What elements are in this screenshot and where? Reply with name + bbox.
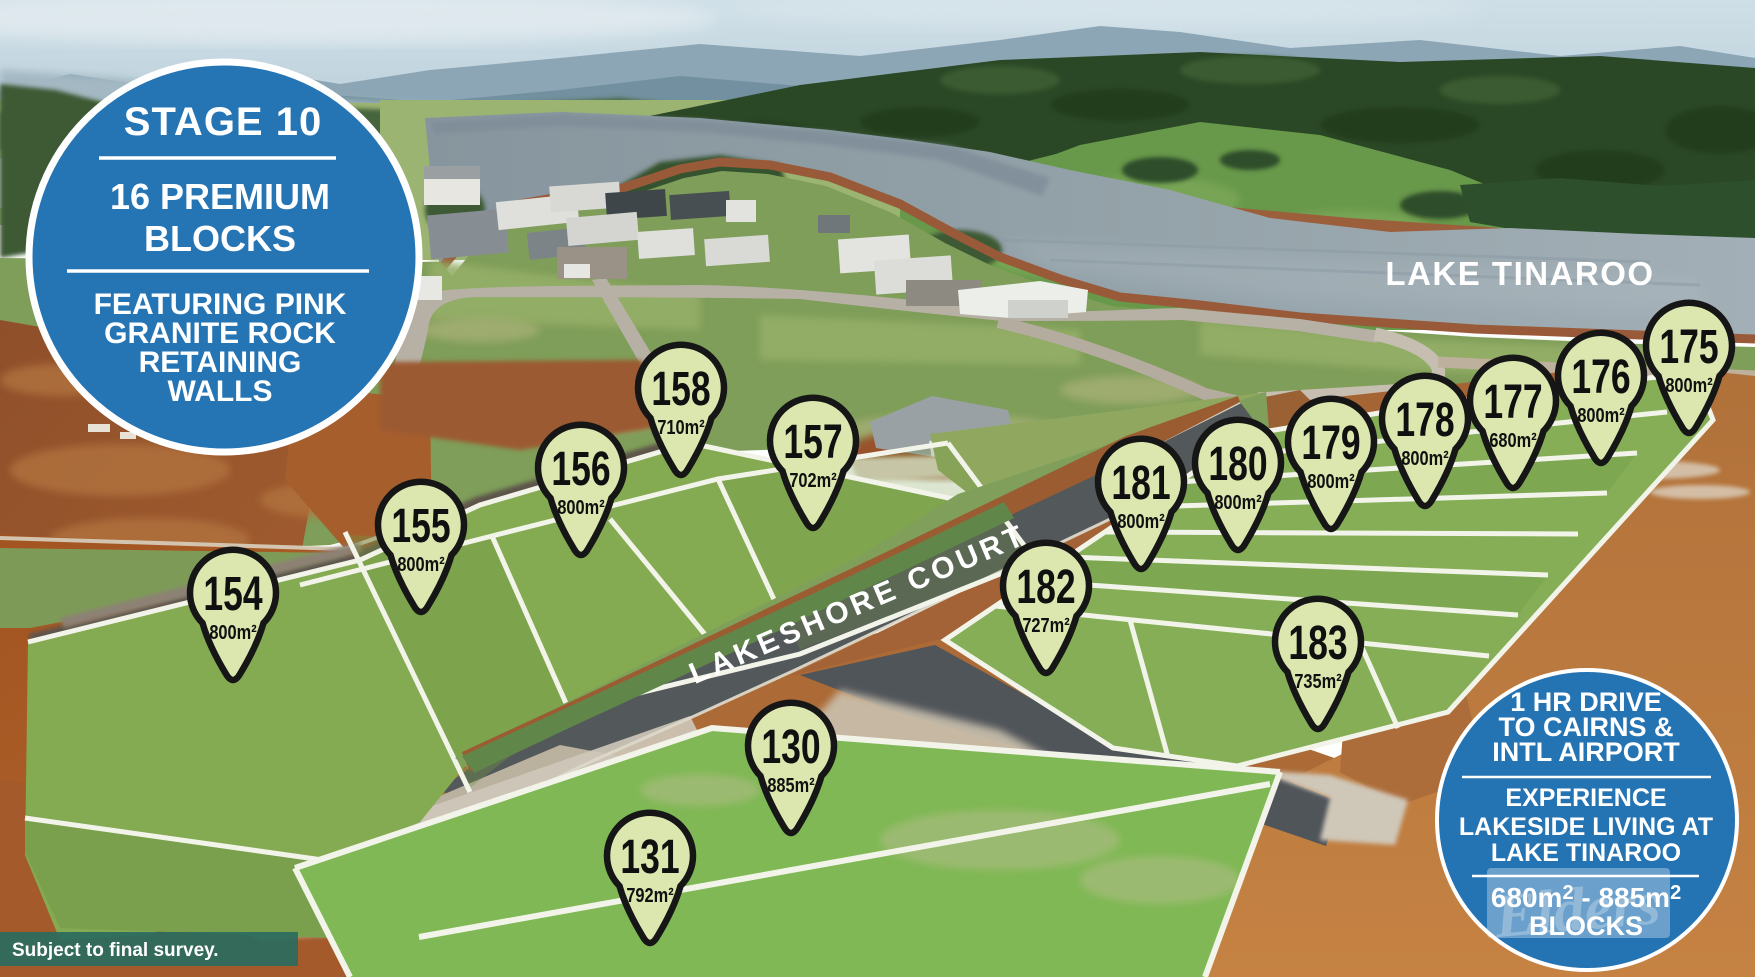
svg-text:130: 130	[761, 720, 820, 773]
svg-text:STAGE 10: STAGE 10	[124, 100, 322, 144]
svg-text:180: 180	[1208, 437, 1267, 490]
svg-text:BLOCKS: BLOCKS	[1529, 911, 1643, 941]
svg-text:800m²: 800m²	[1665, 373, 1712, 396]
svg-text:183: 183	[1288, 616, 1347, 669]
svg-text:885m²: 885m²	[767, 773, 814, 796]
svg-text:179: 179	[1301, 416, 1360, 469]
svg-text:680m2 - 885m2: 680m2 - 885m2	[1491, 882, 1681, 913]
svg-text:LAKE TINAROO: LAKE TINAROO	[1385, 255, 1654, 292]
svg-text:800m²: 800m²	[1214, 490, 1261, 513]
svg-text:Subject to final survey.: Subject to final survey.	[12, 940, 219, 961]
svg-text:800m²: 800m²	[397, 552, 444, 575]
svg-text:177: 177	[1483, 375, 1542, 428]
svg-text:155: 155	[391, 499, 450, 552]
svg-text:156: 156	[551, 442, 610, 495]
svg-text:735m²: 735m²	[1294, 669, 1341, 692]
svg-text:800m²: 800m²	[1117, 509, 1164, 532]
svg-text:LAKESIDE LIVING AT: LAKESIDE LIVING AT	[1459, 813, 1713, 841]
svg-text:BLOCKS: BLOCKS	[144, 218, 296, 259]
svg-text:800m²: 800m²	[1307, 469, 1354, 492]
svg-text:181: 181	[1111, 456, 1170, 509]
svg-text:710m²: 710m²	[657, 415, 704, 438]
svg-text:LAKE TINAROO: LAKE TINAROO	[1491, 839, 1681, 867]
svg-text:154: 154	[203, 567, 263, 620]
svg-text:WALLS: WALLS	[168, 375, 273, 408]
svg-text:182: 182	[1016, 560, 1075, 613]
svg-text:16 PREMIUM: 16 PREMIUM	[110, 176, 330, 217]
svg-text:680m²: 680m²	[1489, 428, 1536, 451]
svg-text:702m²: 702m²	[789, 468, 836, 491]
svg-text:727m²: 727m²	[1022, 613, 1069, 636]
svg-text:800m²: 800m²	[1577, 403, 1624, 426]
svg-text:792m²: 792m²	[626, 883, 673, 906]
svg-text:800m²: 800m²	[1401, 446, 1448, 469]
svg-text:131: 131	[620, 830, 679, 883]
svg-text:EXPERIENCE: EXPERIENCE	[1505, 784, 1666, 812]
svg-text:178: 178	[1395, 393, 1454, 446]
svg-text:175: 175	[1659, 320, 1718, 373]
svg-text:176: 176	[1571, 350, 1630, 403]
svg-text:800m²: 800m²	[557, 495, 604, 518]
svg-text:INTL AIRPORT: INTL AIRPORT	[1492, 737, 1680, 767]
svg-text:157: 157	[783, 415, 842, 468]
svg-text:800m²: 800m²	[209, 620, 256, 643]
svg-text:158: 158	[651, 362, 710, 415]
